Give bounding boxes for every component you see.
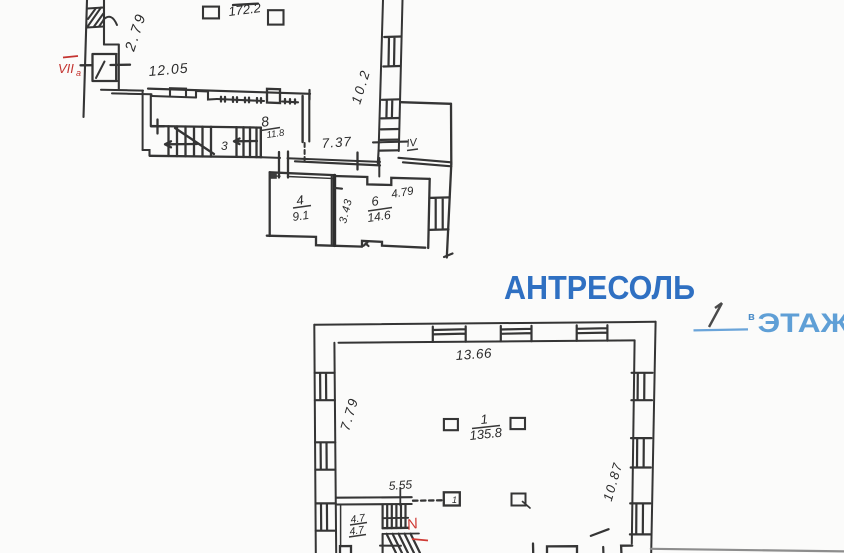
svg-text:3: 3 xyxy=(221,139,228,153)
svg-text:5.55: 5.55 xyxy=(388,477,413,493)
svg-text:в: в xyxy=(748,311,755,323)
svg-text:АНТРЕСОЛЬ: АНТРЕСОЛЬ xyxy=(504,269,695,306)
svg-text:1: 1 xyxy=(452,495,457,505)
svg-text:а: а xyxy=(76,68,81,78)
svg-text:7.37: 7.37 xyxy=(321,134,352,151)
svg-text:VII: VII xyxy=(58,61,74,76)
svg-text:9.1: 9.1 xyxy=(291,208,309,224)
svg-text:13.66: 13.66 xyxy=(455,345,492,362)
svg-text:ЭТАЖ: ЭТАЖ xyxy=(758,308,844,338)
